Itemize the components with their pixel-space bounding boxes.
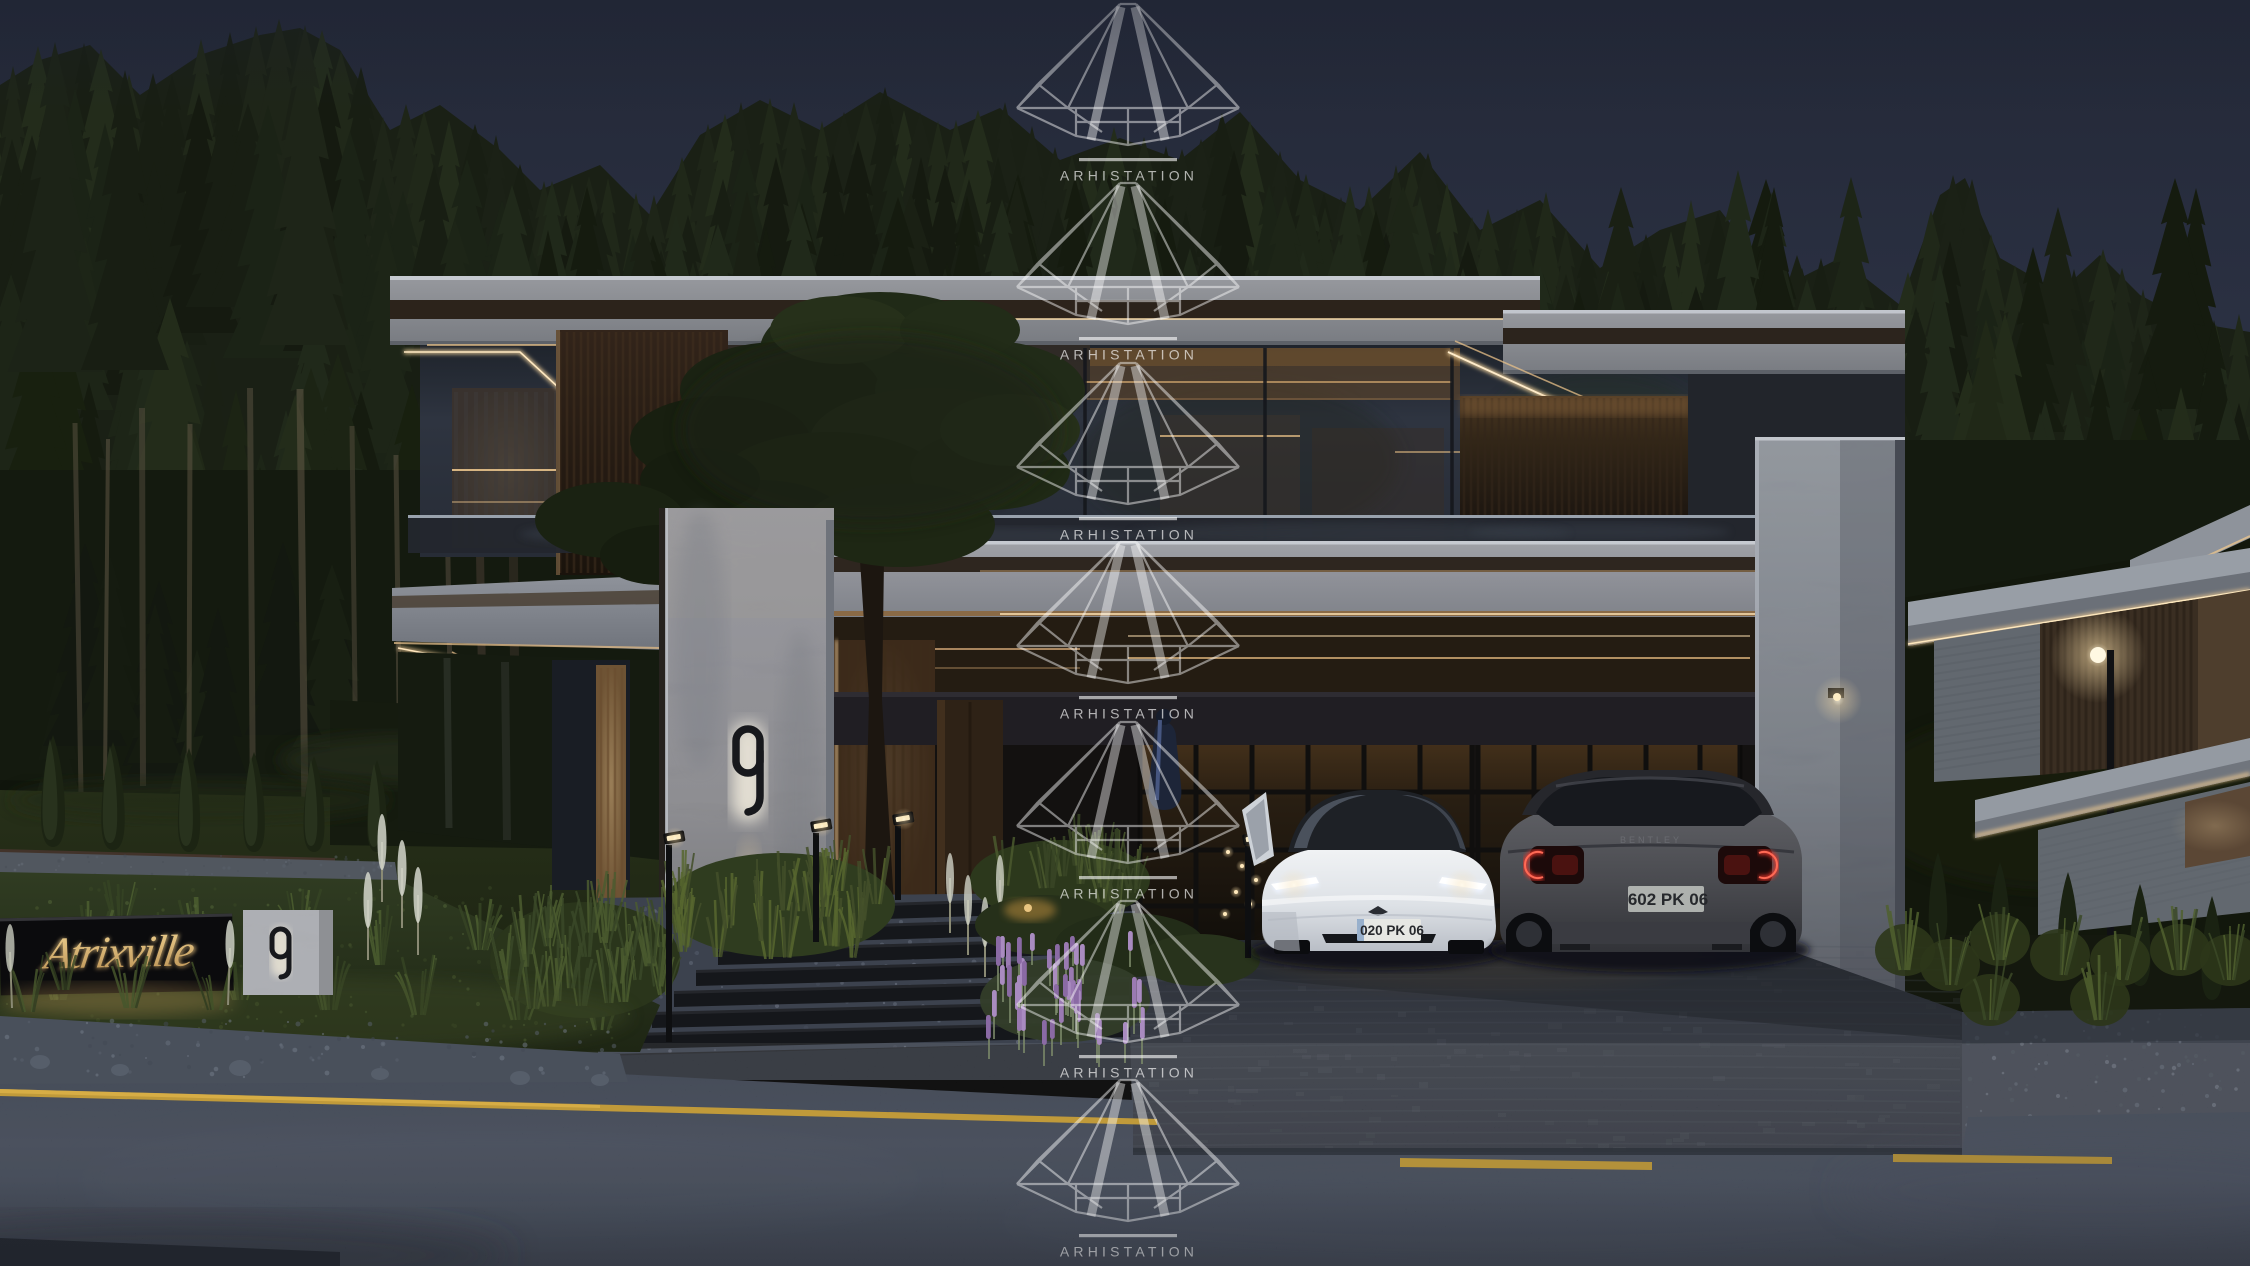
svg-text:BENTLEY: BENTLEY bbox=[1620, 835, 1682, 845]
svg-text:020 PK 06: 020 PK 06 bbox=[1360, 923, 1424, 938]
svg-text:602 PK 06: 602 PK 06 bbox=[1628, 890, 1708, 909]
